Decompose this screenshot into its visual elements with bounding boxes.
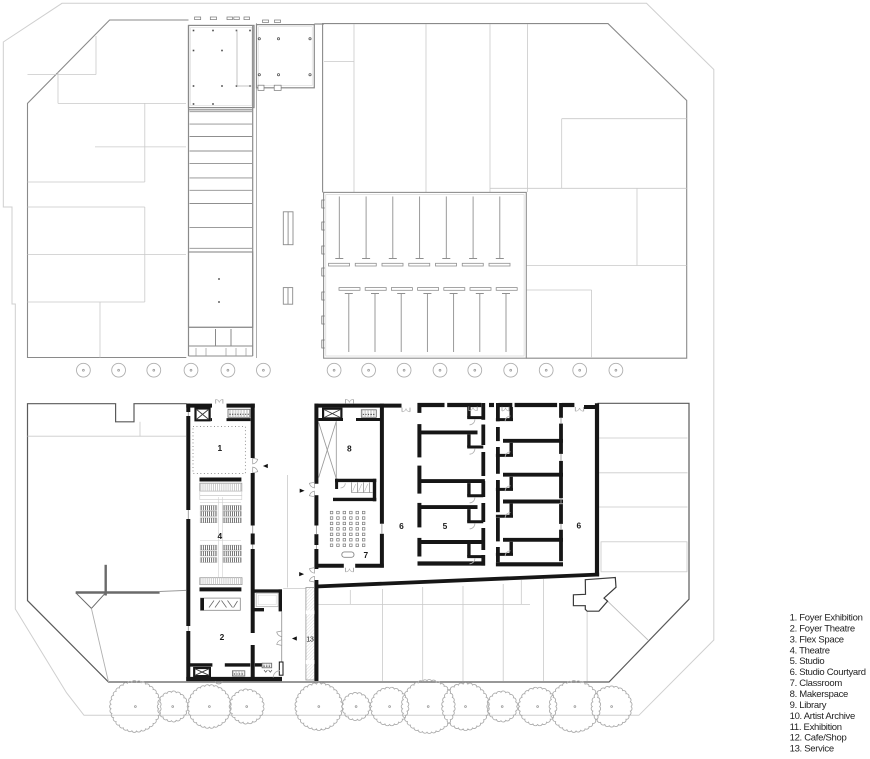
svg-text:6: 6 <box>399 521 404 531</box>
svg-text:10. Artist Archive: 10. Artist Archive <box>790 711 855 722</box>
svg-text:1. Foyer Exhibition: 1. Foyer Exhibition <box>790 613 863 624</box>
svg-text:4. Theatre: 4. Theatre <box>790 645 830 656</box>
svg-text:7. Classroom: 7. Classroom <box>790 678 843 689</box>
svg-text:3. Flex Space: 3. Flex Space <box>790 634 844 645</box>
svg-text:6: 6 <box>576 521 581 531</box>
svg-text:7: 7 <box>363 550 368 560</box>
svg-text:5: 5 <box>443 521 448 531</box>
svg-text:11. Exhibition: 11. Exhibition <box>790 722 842 733</box>
svg-text:8. Makerspace: 8. Makerspace <box>790 689 848 700</box>
svg-text:5. Studio: 5. Studio <box>790 656 825 667</box>
svg-text:13. Service: 13. Service <box>790 744 834 755</box>
svg-text:1: 1 <box>217 443 222 453</box>
svg-text:8: 8 <box>347 443 352 453</box>
svg-text:4: 4 <box>217 531 222 541</box>
svg-text:9. Library: 9. Library <box>790 700 827 711</box>
svg-text:2. Foyer Theatre: 2. Foyer Theatre <box>790 623 855 634</box>
svg-text:13: 13 <box>306 635 314 644</box>
svg-text:12. Cafe/Shop: 12. Cafe/Shop <box>790 733 847 744</box>
svg-text:2: 2 <box>220 632 225 642</box>
svg-text:6. Studio Courtyard: 6. Studio Courtyard <box>790 667 866 678</box>
